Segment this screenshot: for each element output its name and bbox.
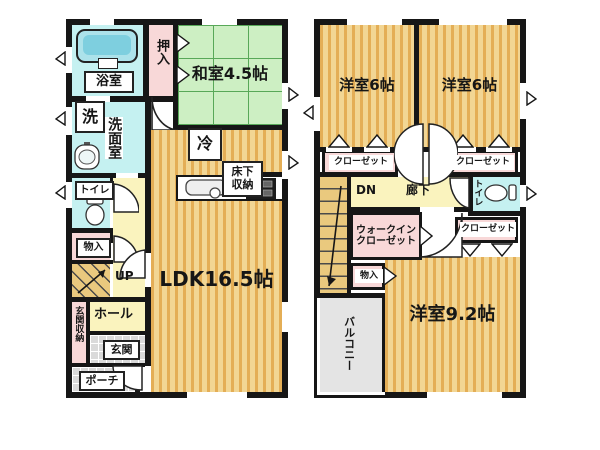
closet-label: クローゼット (329, 155, 393, 170)
room-label: 物入 (76, 238, 111, 258)
window-arrow-icon (526, 91, 537, 106)
bath-faucet-icon (98, 58, 118, 69)
room-label: 物入 (355, 269, 383, 283)
window (437, 19, 509, 25)
washer-label: 洗 (75, 101, 105, 133)
window (314, 95, 320, 133)
room-label: 玄関 (103, 340, 140, 360)
window (66, 105, 72, 137)
stairs-arrow-icon (322, 180, 346, 296)
wall (143, 25, 149, 96)
door-triangle-icon (383, 266, 397, 286)
floor-plan-2f: 洋室6帖 洋室6帖 クローゼット クローゼット DN 廊下 トイレ ウォークイン… (314, 19, 526, 398)
closet-label: クローゼット (460, 222, 516, 237)
wic-label: ウォークイン クローゼット (353, 221, 419, 251)
closet-label: クローゼット (452, 155, 514, 170)
room-label: 玄関収納 (73, 306, 83, 342)
stairs-arrow-icon (74, 266, 110, 296)
window-arrow-icon (55, 185, 66, 200)
door-triangle-icon (366, 134, 388, 148)
room-label: 和室4.5帖 (178, 63, 282, 85)
room-label: 浴室 (84, 71, 134, 93)
balcony-wall (314, 392, 385, 398)
room-label: 洗面室 (105, 117, 123, 159)
stairs-up-label: UP (115, 270, 134, 284)
wall (145, 102, 151, 366)
floor-storage-label: 床下 収納 (222, 161, 263, 197)
window-arrow-icon (55, 111, 66, 126)
wic-line2: クローゼット (356, 236, 416, 248)
floor-plan-1f: 浴室 押入 和室4.5帖 洗 洗面室 冷 床下 収納 LDK16.5帖 トイレ … (66, 19, 288, 398)
door-triangle-icon (328, 134, 350, 148)
door-triangle-icon (491, 243, 513, 257)
door-triangle-icon (176, 33, 190, 53)
window-arrow-icon (526, 186, 537, 201)
door-arc (448, 177, 470, 209)
door-arc (150, 96, 178, 130)
room-label: LDK16.5帖 (151, 266, 282, 292)
wall (72, 260, 113, 264)
wall (320, 172, 398, 177)
wall (468, 211, 520, 216)
wall (347, 177, 351, 298)
window (200, 19, 239, 25)
window-arrow-icon (288, 155, 299, 170)
floor-storage-line2: 収納 (232, 179, 254, 192)
door-triangle-icon (488, 134, 510, 148)
window (185, 392, 249, 398)
balcony-wall (314, 298, 320, 398)
floor-plan-image: 浴室 押入 和室4.5帖 洗 洗面室 冷 床下 収納 LDK16.5帖 トイレ … (0, 0, 600, 450)
room-label: 押入 (153, 39, 168, 65)
window (66, 180, 72, 210)
door-arc (418, 211, 464, 259)
room-label: トイレ (472, 179, 482, 206)
window-arrow-icon (303, 105, 314, 120)
door-arc (394, 123, 458, 185)
room-label: 廊下 (406, 184, 430, 198)
window (66, 45, 72, 75)
window (425, 392, 504, 398)
sink-icon (73, 141, 101, 171)
wall (90, 331, 145, 335)
room-label: 洋室6帖 (320, 75, 414, 97)
room-label: 洋室9.2帖 (385, 303, 520, 327)
room-label: ホール (94, 308, 133, 323)
window (282, 300, 288, 334)
room-label: トイレ (75, 181, 114, 200)
toilet-icon (482, 181, 518, 205)
window (88, 19, 116, 25)
room-label: バルコニー (342, 316, 355, 371)
window-arrow-icon (55, 51, 66, 66)
wic-line1: ウォークイン (356, 225, 416, 237)
stairs-down-label: DN (356, 184, 376, 198)
wall (72, 297, 145, 302)
door-arc (113, 183, 139, 213)
door-opening (116, 173, 138, 178)
wall (72, 228, 113, 233)
room-label: 洋室6帖 (419, 75, 520, 97)
room-label: ポーチ (79, 371, 125, 391)
window-arrow-icon (288, 87, 299, 102)
fridge-label: 冷 (188, 128, 222, 161)
window (345, 19, 404, 25)
